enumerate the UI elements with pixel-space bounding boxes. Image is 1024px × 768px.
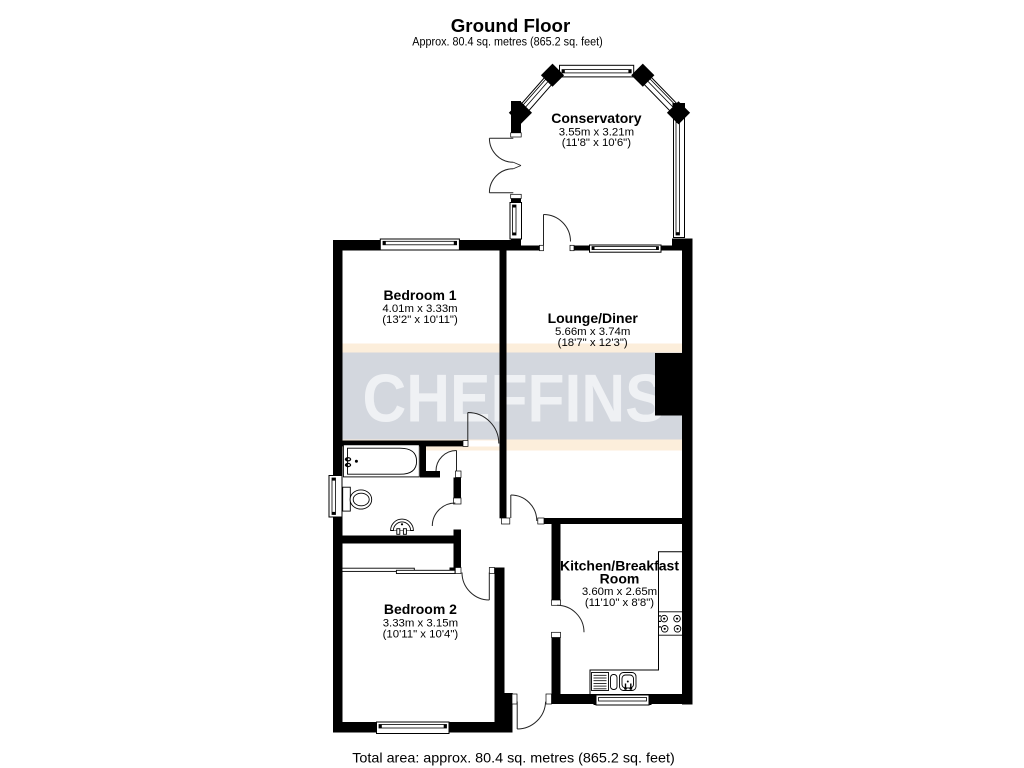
svg-text:5.66m x 3.74m: 5.66m x 3.74m (555, 326, 630, 338)
svg-text:Bedroom 2: Bedroom 2 (384, 601, 457, 617)
svg-text:(11'8" x 10'6"): (11'8" x 10'6") (562, 137, 631, 149)
svg-text:3.60m x 2.65m: 3.60m x 2.65m (582, 586, 657, 598)
svg-text:Conservatory: Conservatory (551, 110, 641, 126)
svg-text:Lounge/Diner: Lounge/Diner (548, 310, 639, 326)
svg-text:Bedroom 1: Bedroom 1 (383, 287, 456, 303)
svg-text:Approx. 80.4 sq. metres (865.2: Approx. 80.4 sq. metres (865.2 sq. feet) (412, 36, 603, 48)
svg-text:(13'2" x 10'11"): (13'2" x 10'11") (382, 314, 458, 326)
svg-text:Room: Room (600, 570, 640, 586)
svg-text:Total area: approx. 80.4 sq. m: Total area: approx. 80.4 sq. metres (865… (352, 750, 675, 766)
svg-text:CHEFFINS: CHEFFINS (363, 361, 666, 437)
svg-text:Ground Floor: Ground Floor (451, 15, 571, 36)
svg-text:(18'7" x 12'3"): (18'7" x 12'3") (558, 337, 628, 349)
svg-text:(10'11" x 10'4"): (10'11" x 10'4") (383, 628, 459, 640)
svg-text:(11'10" x 8'8"): (11'10" x 8'8") (585, 597, 654, 609)
